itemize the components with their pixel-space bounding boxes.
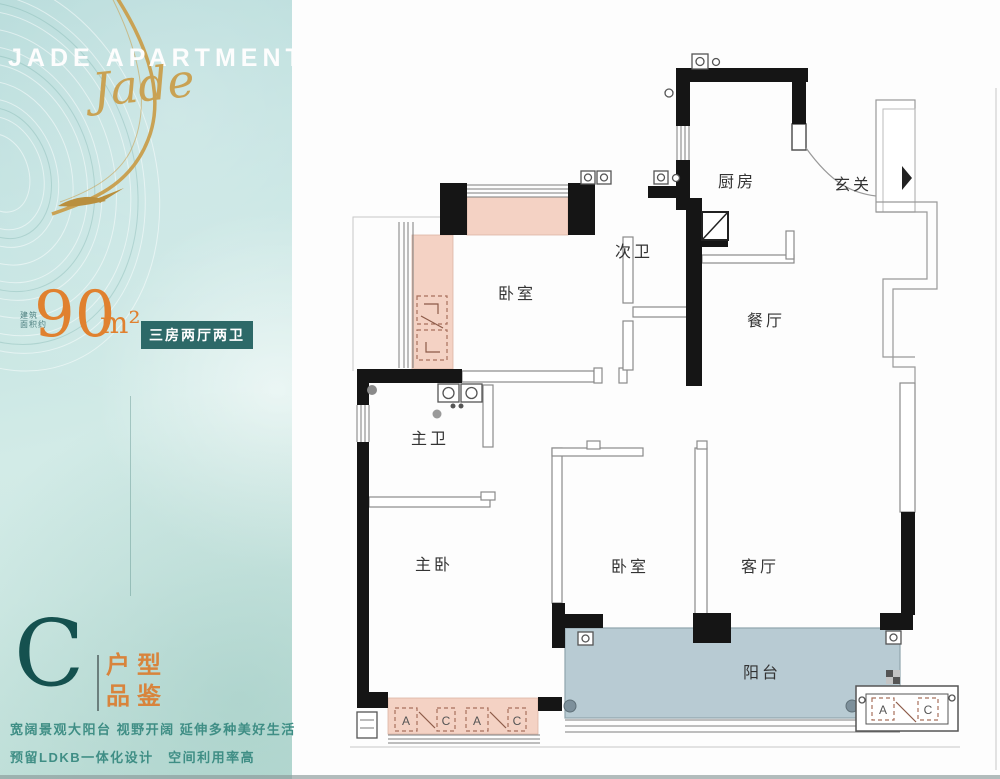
svg-text:A: A	[879, 703, 887, 717]
door-jamb	[481, 492, 495, 500]
room-label-dining: 餐厅	[747, 312, 785, 330]
window-master-left	[357, 405, 369, 442]
wall-bedroom2-west	[552, 448, 562, 603]
wall-bath2-south	[633, 307, 690, 317]
entry-door-leaf	[792, 124, 806, 150]
svg-text:A: A	[473, 714, 481, 728]
room-label-bath2: 次卫	[615, 243, 653, 261]
window-kitchen-left	[677, 126, 689, 160]
column-dot	[367, 385, 377, 395]
ac-platform: A C	[856, 686, 958, 731]
room-label-kitchen: 厨房	[718, 173, 756, 191]
kitchen-counter	[702, 255, 794, 263]
window-bedroom1-left	[399, 222, 413, 368]
room-label-living: 客厅	[741, 558, 779, 576]
drain-checker	[886, 670, 900, 684]
window-balcony	[565, 720, 900, 732]
room-label-foyer: 玄关	[834, 176, 872, 194]
door-jamb	[594, 368, 602, 383]
door-jamb	[587, 441, 600, 449]
svg-text:C: C	[924, 703, 933, 717]
vent-box	[357, 712, 377, 738]
column-dot	[433, 410, 442, 419]
room-label-bath1: 主卫	[411, 430, 449, 448]
wall-bedroom2-east	[695, 448, 707, 615]
core-step-outer	[876, 202, 937, 383]
svg-text:C: C	[442, 714, 451, 728]
floorplan-poster: JADE APARTMENTS Jade 建筑 面积约 90 m² 三房两厅两卫…	[0, 0, 1000, 779]
floorplan: A C A C A C 厨房 玄关 次卫 卧室 餐厅 主卫 主卧 卧	[0, 0, 1000, 779]
kitchen-counter-return	[786, 231, 794, 259]
wardrobe-top	[467, 197, 568, 235]
core-shaft	[876, 100, 915, 212]
core-step-inner	[876, 212, 927, 357]
door-jamb	[697, 441, 707, 449]
room-label-bedroom1: 卧室	[498, 285, 536, 303]
room-label-bedroom2: 卧室	[611, 558, 649, 576]
room-label-master: 主卧	[415, 556, 453, 574]
wall-bath1-south	[369, 497, 490, 507]
wall-bath2-west-lower	[623, 321, 633, 370]
balcony-drain	[564, 700, 576, 712]
wall-bedroom1-south	[462, 371, 594, 382]
wall-bath1-east	[483, 385, 493, 447]
room-label-balcony: 阳台	[743, 664, 781, 682]
svg-text:C: C	[513, 714, 522, 728]
window-bedroom1-top	[467, 185, 568, 197]
wall-living-east	[900, 383, 915, 512]
svg-text:A: A	[402, 714, 410, 728]
image-bottom-edge	[0, 775, 1000, 779]
window-master-bottom	[388, 735, 540, 743]
